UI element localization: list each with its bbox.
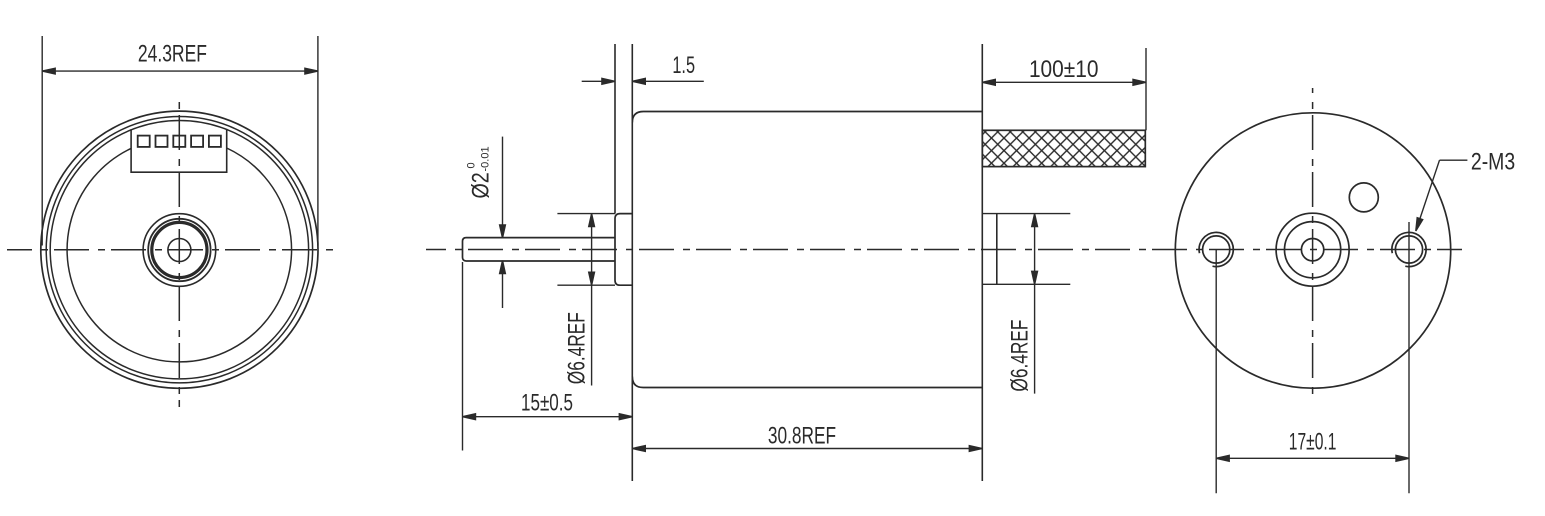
svg-text:30.8REF: 30.8REF [768, 423, 836, 449]
svg-text:0: 0 [466, 162, 478, 168]
svg-text:Ø6.4REF: Ø6.4REF [564, 312, 590, 384]
svg-text:17±0.1: 17±0.1 [1289, 429, 1337, 455]
svg-text:Ø2: Ø2 [467, 172, 494, 198]
svg-text:24.3REF: 24.3REF [138, 41, 207, 67]
svg-text:-0.01: -0.01 [480, 146, 492, 171]
svg-text:Ø6.4REF: Ø6.4REF [1007, 320, 1033, 392]
svg-text:15±0.5: 15±0.5 [521, 390, 573, 417]
svg-text:2-M3: 2-M3 [1471, 148, 1515, 175]
svg-text:100±10: 100±10 [1029, 56, 1099, 83]
svg-text:1.5: 1.5 [672, 52, 695, 79]
